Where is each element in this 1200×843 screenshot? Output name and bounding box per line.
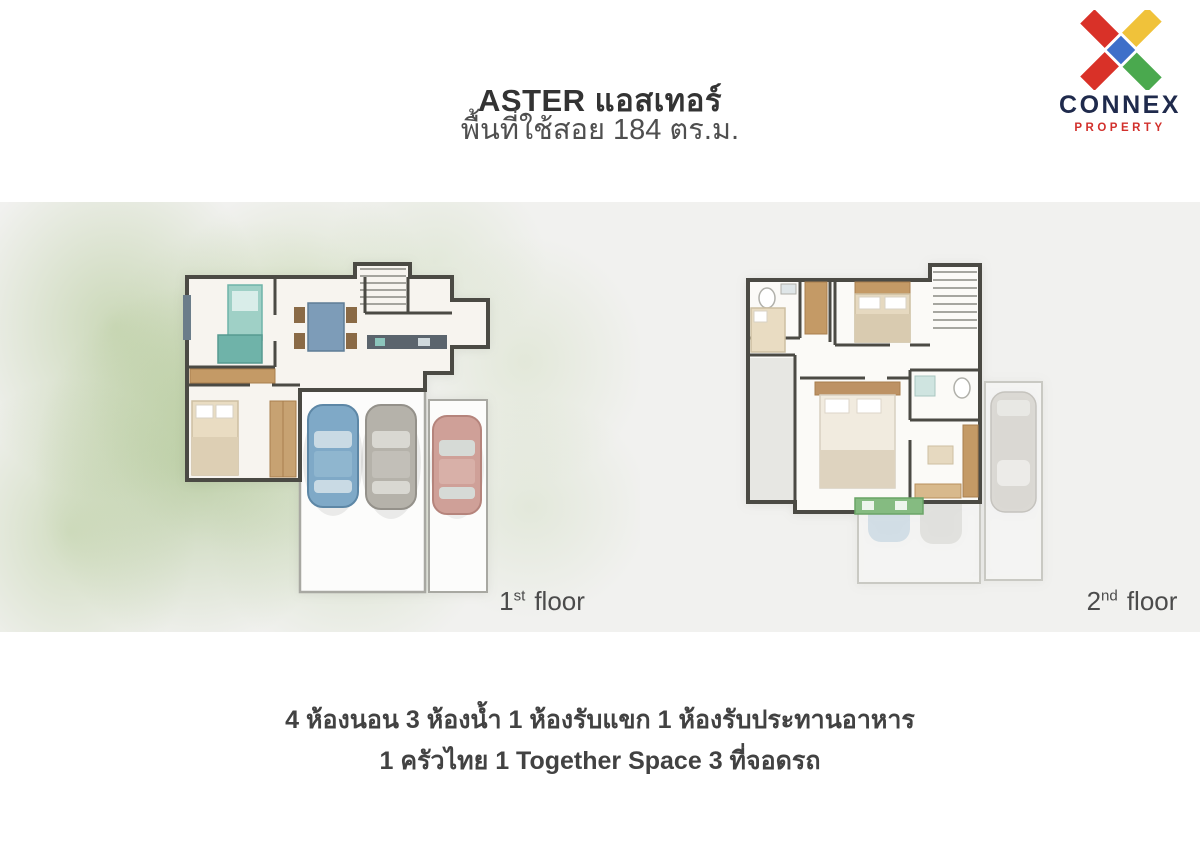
car-blue [303, 404, 363, 516]
car-ghost-gray [991, 392, 1036, 512]
floor-ordinal-suffix: nd [1101, 587, 1118, 604]
floor-number: 2 [1087, 586, 1101, 616]
garage [300, 374, 425, 592]
bedroom-1-master [815, 382, 900, 488]
together-space-bench [855, 498, 923, 514]
floor-word: floor [1127, 586, 1178, 616]
car-gray [361, 405, 421, 519]
balcony [750, 358, 795, 500]
floor-word: floor [534, 586, 585, 616]
first-floor-label: 1stfloor [442, 586, 642, 617]
floor-plan-first-floor [170, 255, 500, 600]
poster: ASTER แอสเทอร์ พื้นที่ใช้สอย 184 ตร.ม. C… [0, 0, 1200, 843]
floor-number: 1 [499, 586, 513, 616]
floor-ordinal-suffix: st [514, 587, 526, 604]
ghost-carport [985, 382, 1042, 580]
floor-plan-second-floor [735, 250, 1045, 595]
connex-x-icon [1072, 10, 1168, 90]
page-subtitle: พื้นที่ใช้สอย 184 ตร.ม. [0, 106, 1200, 152]
carport [429, 400, 487, 592]
connex-logo: CONNEX PROPERTY [1048, 10, 1192, 134]
pantry-counter [367, 335, 447, 349]
bedroom-3 [855, 282, 910, 342]
logo-name: CONNEX [1048, 91, 1192, 120]
car-red [430, 415, 484, 519]
second-floor-label: 2ndfloor [1032, 586, 1200, 617]
amenity-summary-line-1: 4 ห้องนอน 3 ห้องน้ำ 1 ห้องรับแขก 1 ห้องร… [0, 700, 1200, 740]
amenity-summary-line-2: 1 ครัวไทย 1 Together Space 3 ที่จอดรถ [0, 741, 1200, 781]
logo-tagline: PROPERTY [1048, 122, 1192, 134]
